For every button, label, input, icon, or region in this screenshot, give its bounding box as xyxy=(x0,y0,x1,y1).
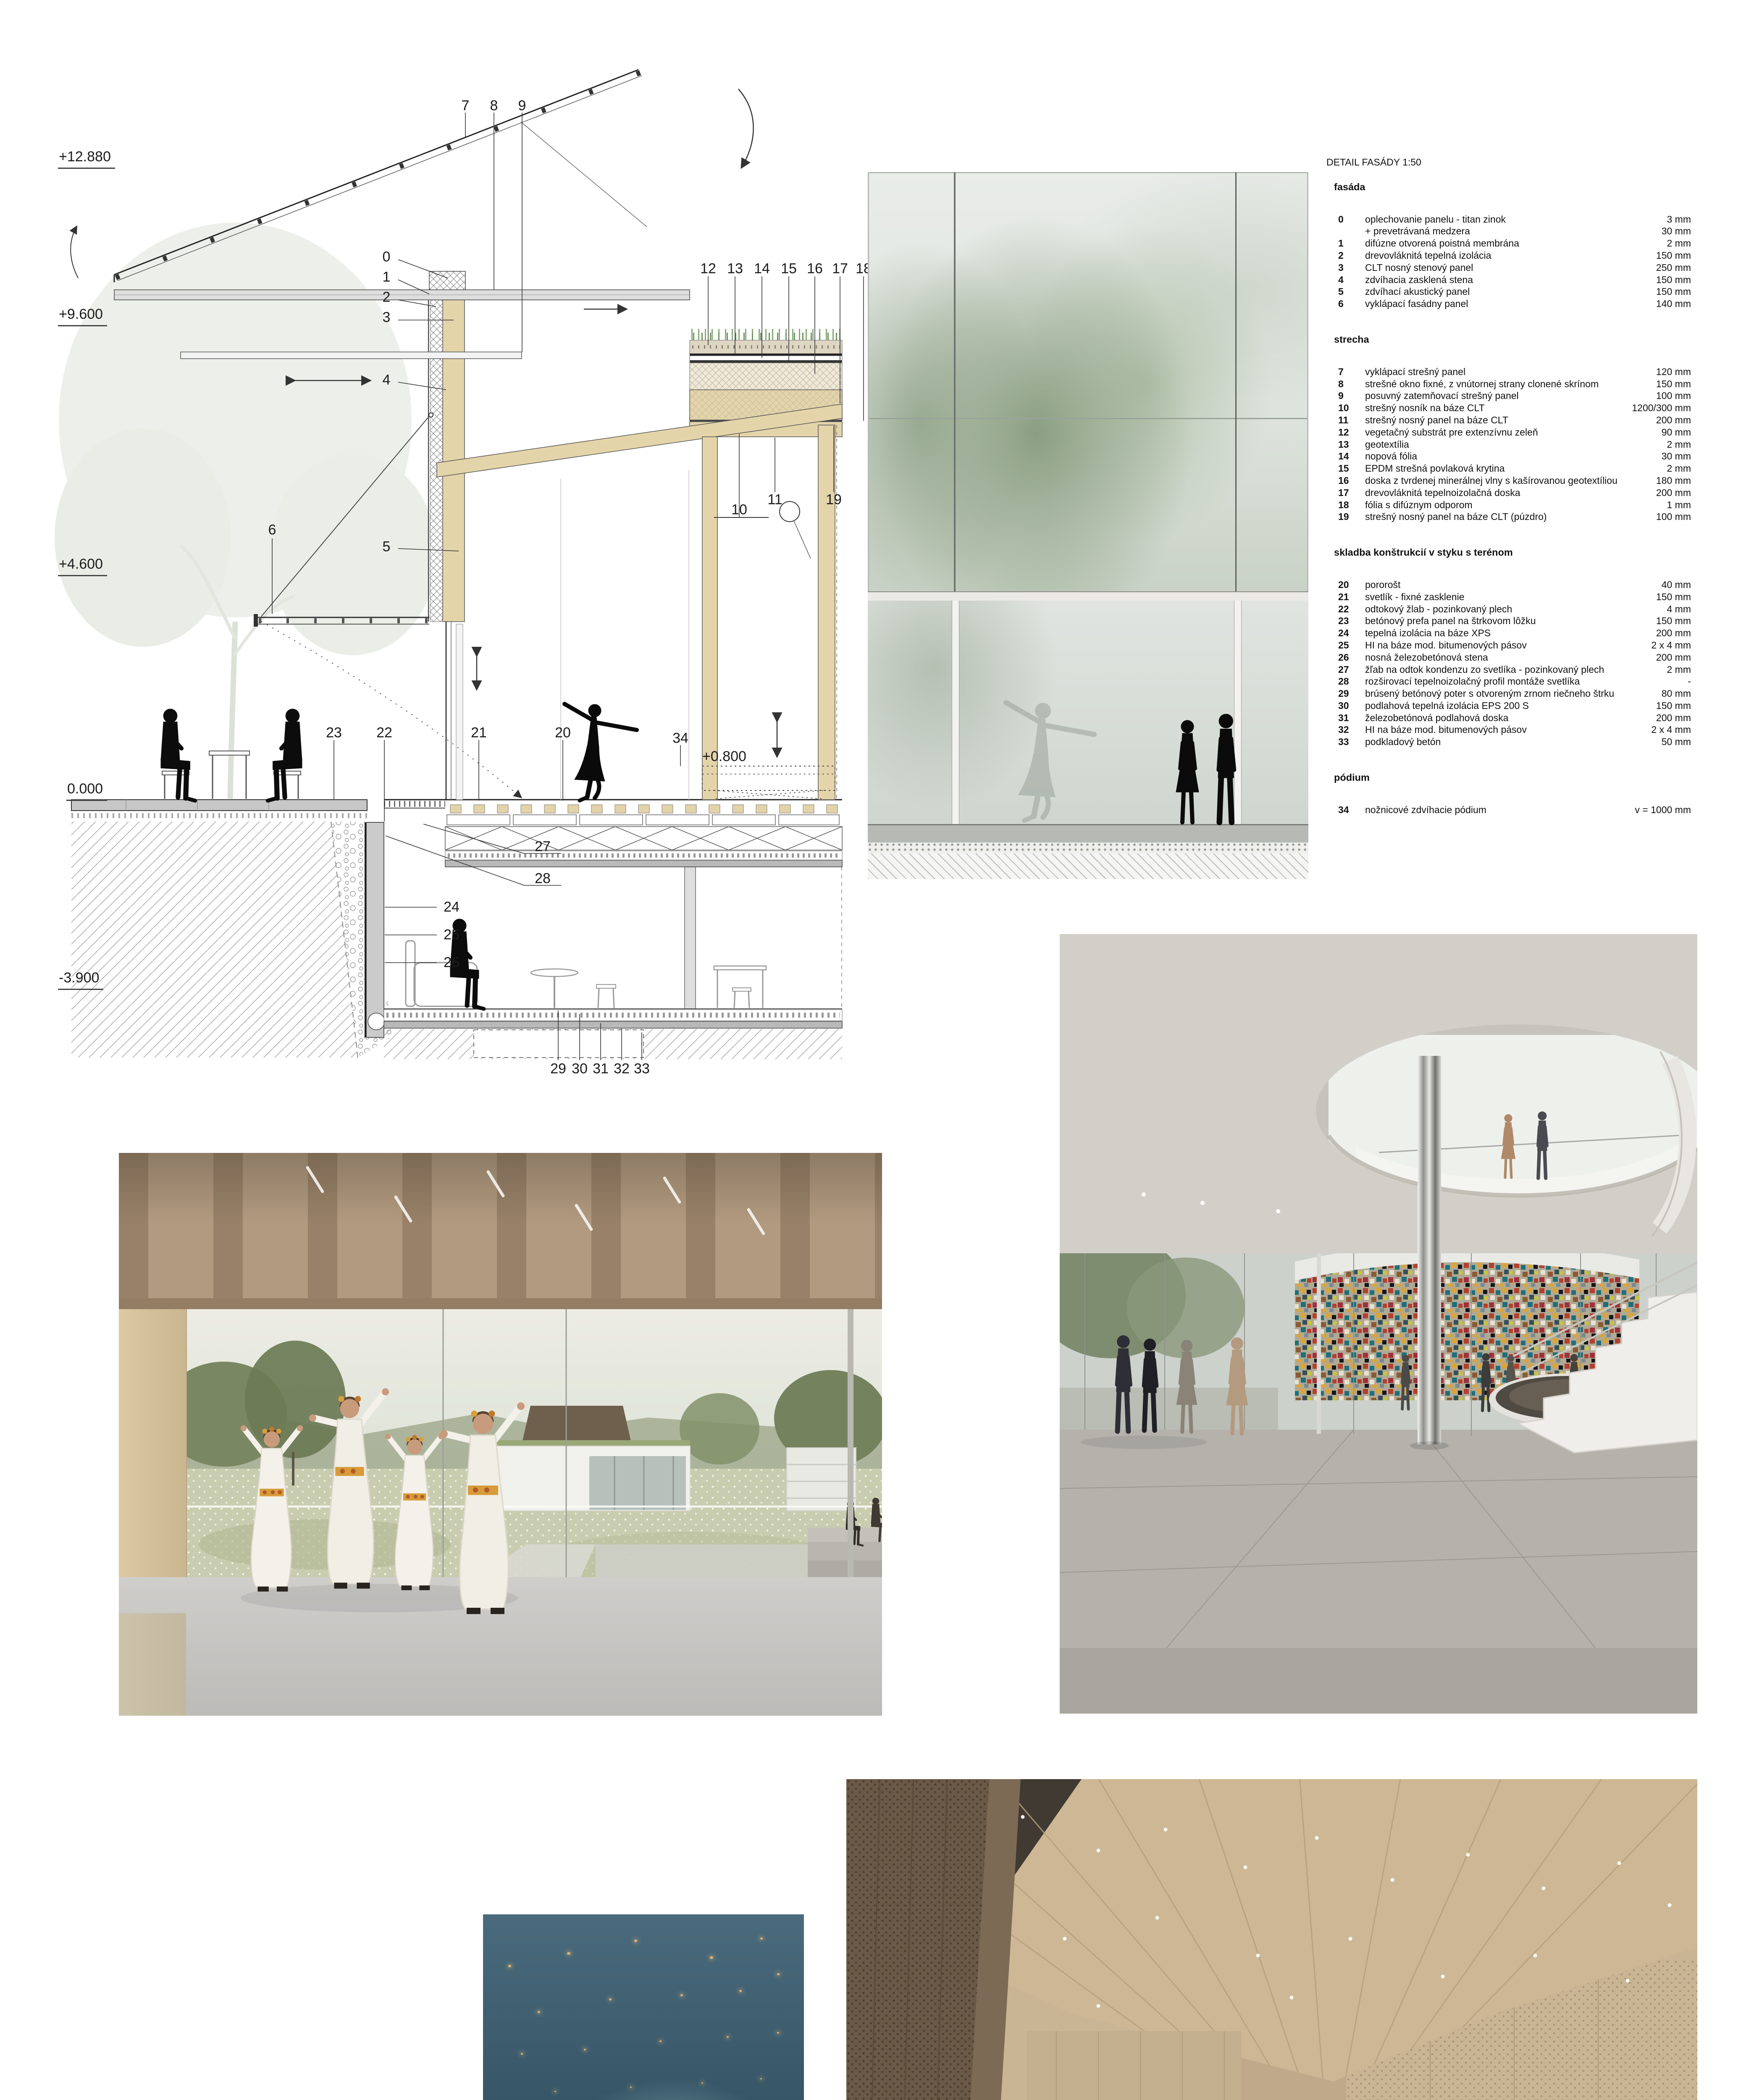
legend-item-label: tepelná izolácia na báze XPS xyxy=(1365,627,1656,639)
legend-item-label: doska z tvrdenej minerálnej vlny s kašír… xyxy=(1365,475,1656,487)
legend-item-label: nosná železobetónová stena xyxy=(1365,651,1656,664)
legend-item: 24tepelná izolácia na báze XPS200 mm xyxy=(1326,627,1691,639)
legend-item-label: drevovláknitá tepelná izolácia xyxy=(1365,249,1656,262)
legend-item-value: 30 mm xyxy=(1662,225,1691,237)
light-haze xyxy=(483,1914,804,2100)
legend-item-label: žľab na odtok kondenzu zo svetlíka - poz… xyxy=(1365,664,1667,676)
legend-item-number: 8 xyxy=(1338,378,1365,390)
ceiling-light-dot xyxy=(630,2087,632,2088)
legend-item: 15EPDM strešná povlaková krytina2 mm xyxy=(1326,462,1691,475)
legend-item-value: 200 mm xyxy=(1656,627,1691,639)
section-drawing-canvas xyxy=(42,42,867,1117)
folk-dancers xyxy=(119,1153,882,1716)
legend-item-number: 3 xyxy=(1338,262,1365,274)
legend-item-label: rozširovací tepelnoizolačný profil montá… xyxy=(1365,675,1688,688)
legend-item: 29brúsený betónový poter s otvoreným zrn… xyxy=(1326,688,1691,700)
legend-item: 20pororošt40 mm xyxy=(1326,579,1691,591)
legend-item: 11strešný nosný panel na báze CLT200 mm xyxy=(1326,414,1691,426)
legend-item: 14nopová fólia30 mm xyxy=(1326,450,1691,462)
legend-item-value: 150 mm xyxy=(1656,591,1691,603)
legend-item-label: strešné okno fixné, z vnútornej strany c… xyxy=(1365,378,1656,390)
ceiling-light-dot xyxy=(659,2040,662,2042)
legend-item-label: strešný nosný panel na báze CLT (púzdro) xyxy=(1365,511,1656,523)
legend-section-heading: pódium xyxy=(1334,772,1691,784)
ceiling-light-dot xyxy=(760,2078,762,2079)
legend-items: 0oplechovanie panelu - titan zinok3 mm+ … xyxy=(1326,213,1691,310)
legend-item-label: HI na báze mod. bitumenových pásov xyxy=(1365,639,1651,651)
legend-item-label: brúsený betónový poter s otvoreným zrnom… xyxy=(1365,688,1662,700)
legend-item-value: 3 mm xyxy=(1667,213,1691,226)
legend-item-value: v = 1000 mm xyxy=(1635,804,1691,816)
legend-item: 1difúzne otvorená poistná membrána2 mm xyxy=(1326,237,1691,249)
excavation-and-retaining-wall xyxy=(71,822,392,1058)
ceiling-light-dot xyxy=(680,1994,683,1996)
facade-detail-section-drawing: +12.880+9.600+4.6000.000-3.9007891213141… xyxy=(0,0,890,1142)
legend-section-heading: strecha xyxy=(1334,333,1691,346)
legend-item-number: 31 xyxy=(1338,712,1365,724)
legend-section-heading: skladba konštrukcií v styku s terénom xyxy=(1334,546,1691,559)
legend-item-number: 16 xyxy=(1338,475,1365,487)
legend-item-number: 20 xyxy=(1338,579,1365,591)
legend-item-value: 2 x 4 mm xyxy=(1651,639,1691,651)
legend-item-value: 4 mm xyxy=(1667,603,1691,615)
legend-item-value: 180 mm xyxy=(1656,475,1691,487)
legend-item: 3CLT nosný stenový panel250 mm xyxy=(1326,262,1691,274)
legend-item-label: nožnicové zdvíhacie pódium xyxy=(1365,804,1635,816)
legend-items: 7vyklápací strešný panel120 mm8strešné o… xyxy=(1326,366,1691,523)
legend-item-value: 200 mm xyxy=(1656,487,1691,499)
legend-item-value: 150 mm xyxy=(1656,378,1691,390)
legend-item: 13geotextília2 mm xyxy=(1326,438,1691,451)
legend-item-label: + prevetrávaná medzera xyxy=(1365,225,1662,237)
legend-item-value: 2 x 4 mm xyxy=(1651,724,1691,736)
legend-item: 17drevovláknitá tepelnoizolačná doska200… xyxy=(1326,487,1691,499)
legend-item-number: 12 xyxy=(1338,426,1365,438)
legend-item-number: 24 xyxy=(1338,627,1365,639)
legend-item-value: 2 mm xyxy=(1667,438,1691,451)
legend-item-value: 90 mm xyxy=(1662,426,1691,438)
ceiling-light-dot xyxy=(538,2011,540,2013)
legend-item-label: nopová fólia xyxy=(1365,450,1662,462)
legend-item-label: zdvíhacia zasklená stena xyxy=(1365,274,1656,286)
legend-item-number: 2 xyxy=(1338,249,1365,262)
legend-item-label: zdvíhací akustický panel xyxy=(1365,286,1656,298)
legend-item-value: 120 mm xyxy=(1656,366,1691,378)
legend-items: 34nožnicové zdvíhacie pódiumv = 1000 mm xyxy=(1326,804,1691,816)
legend-item-number: 1 xyxy=(1338,237,1365,249)
legend-item: + prevetrávaná medzera30 mm xyxy=(1326,225,1691,237)
legend-item: 5zdvíhací akustický panel150 mm xyxy=(1326,286,1691,298)
ceiling-light-dot xyxy=(567,1952,570,1955)
legend-item-label: železobetónová podlahová doska xyxy=(1365,712,1656,724)
legend-item-number: 26 xyxy=(1338,651,1365,664)
legend-item-value: 140 mm xyxy=(1656,298,1691,310)
concert-performance-render xyxy=(483,1914,804,2100)
legend-item-label: geotextília xyxy=(1365,438,1667,451)
scissor-lift-podium xyxy=(702,766,835,799)
legend-item-value: 2 mm xyxy=(1667,664,1691,676)
legend-item-label: vyklápací fasádny panel xyxy=(1365,298,1656,310)
interior-dance-hall-render xyxy=(119,1153,882,1716)
plaza-scene xyxy=(1060,934,1697,1714)
legend-item: 34nožnicové zdvíhacie pódiumv = 1000 mm xyxy=(1326,804,1691,816)
legend-item-label: fólia s difúznym odporom xyxy=(1365,499,1667,511)
ceiling-light-dot xyxy=(584,2049,586,2050)
legend-item-number: 7 xyxy=(1338,366,1365,378)
ceiling-light-dot xyxy=(508,1965,511,1967)
legend-item-label: HI na báze mod. bitumenových pásov xyxy=(1365,724,1651,736)
legend-item: 25HI na báze mod. bitumenových pásov2 x … xyxy=(1326,639,1691,651)
legend-item: 21svetlík - fixné zasklenie150 mm xyxy=(1326,591,1691,603)
legend-item: 4zdvíhacia zasklená stena150 mm xyxy=(1326,274,1691,286)
legend-item-label: pororošt xyxy=(1365,579,1662,591)
legend-item-number: 9 xyxy=(1338,390,1365,402)
facade-elevation-render xyxy=(868,172,1308,879)
legend-item: 0oplechovanie panelu - titan zinok3 mm xyxy=(1326,213,1691,226)
legend-item-value: 150 mm xyxy=(1656,286,1691,298)
legend-item-value: 150 mm xyxy=(1656,615,1691,627)
legend-item-number: 13 xyxy=(1338,438,1365,451)
legend-item-label: posuvný zatemňovací strešný panel xyxy=(1365,390,1656,402)
legend-item-value: 50 mm xyxy=(1662,736,1691,748)
legend-item-value: 200 mm xyxy=(1656,414,1691,426)
ceiling-light-dot xyxy=(739,1990,742,1992)
legend-item-value: 100 mm xyxy=(1656,511,1691,523)
legend-item-number: 28 xyxy=(1338,675,1365,688)
legend-item: 23betónový prefa panel na štrkovom lôžku… xyxy=(1326,615,1691,627)
legend-item-value: 1200/300 mm xyxy=(1632,402,1691,414)
ceiling-light-dot xyxy=(634,1940,637,1942)
legend-item-label: strešný nosný panel na báze CLT xyxy=(1365,414,1656,426)
legend-item-label: odtokový žlab - pozinkovaný plech xyxy=(1365,603,1667,615)
legend-item: 19strešný nosný panel na báze CLT (púzdr… xyxy=(1326,511,1691,523)
legend-item-value: 30 mm xyxy=(1662,450,1691,462)
legend-item-label: CLT nosný stenový panel xyxy=(1365,262,1656,274)
elevation-figures xyxy=(868,172,1308,879)
legend-item-number xyxy=(1338,225,1365,237)
legend-item: 10strešný nosník na báze CLT1200/300 mm xyxy=(1326,402,1691,414)
basement-interior xyxy=(384,867,842,1059)
facade-legend: DETAIL FASÁDY 1:50 fasáda0oplechovanie p… xyxy=(1326,156,1691,816)
legend-title: DETAIL FASÁDY 1:50 xyxy=(1326,156,1691,168)
legend-item-value: - xyxy=(1688,675,1691,688)
legend-item-number: 6 xyxy=(1338,298,1365,310)
ceiling-light-dot xyxy=(609,1998,612,2000)
ceiling-light-dot xyxy=(554,2091,556,2092)
legend-item-number: 17 xyxy=(1338,487,1365,499)
legend-item-label: drevovláknitá tepelnoizolačná doska xyxy=(1365,487,1656,499)
legend-item-number: 25 xyxy=(1338,639,1365,651)
legend-item: 22odtokový žlab - pozinkovaný plech4 mm xyxy=(1326,603,1691,615)
ceiling-light-dot xyxy=(760,1937,763,1940)
legend-items: 20pororošt40 mm21svetlík - fixné zasklen… xyxy=(1326,579,1691,748)
legend-item-number: 23 xyxy=(1338,615,1365,627)
legend-item: 12vegetačný substrát pre extenzívnu zele… xyxy=(1326,426,1691,438)
auditorium-scene xyxy=(846,1779,1697,2100)
legend-item-number: 27 xyxy=(1338,664,1365,676)
legend-item: 9posuvný zatemňovací strešný panel100 mm xyxy=(1326,390,1691,402)
legend-item-number: 33 xyxy=(1338,736,1365,748)
terrace xyxy=(71,709,367,816)
legend-item-label: EPDM strešná povlaková krytina xyxy=(1365,462,1667,475)
legend-item-number: 19 xyxy=(1338,511,1365,523)
legend-item: 8strešné okno fixné, z vnútornej strany … xyxy=(1326,378,1691,390)
legend-item-value: 200 mm xyxy=(1656,712,1691,724)
legend-item-value: 100 mm xyxy=(1656,390,1691,402)
legend-item: 18fólia s difúznym odporom1 mm xyxy=(1326,499,1691,511)
auditorium-render xyxy=(846,1779,1697,2100)
legend-item-value: 150 mm xyxy=(1656,700,1691,712)
legend-item-number: 34 xyxy=(1338,804,1365,816)
ceiling-light-dot xyxy=(777,2032,779,2034)
legend-item-label: difúzne otvorená poistná membrána xyxy=(1365,237,1667,249)
legend-item-label: strešný nosník na báze CLT xyxy=(1365,402,1632,414)
legend-item-label: svetlík - fixné zasklenie xyxy=(1365,591,1656,603)
legend-item-value: 80 mm xyxy=(1662,688,1691,700)
covered-plaza-render xyxy=(1060,934,1697,1714)
ceiling-light-dot xyxy=(727,2036,729,2038)
legend-item-number: 18 xyxy=(1338,499,1365,511)
legend-section-heading: fasáda xyxy=(1334,181,1691,193)
background-tree xyxy=(55,223,437,799)
legend-item-label: podkladový betón xyxy=(1365,736,1662,748)
legend-item-number: 15 xyxy=(1338,462,1365,475)
legend-item: 33podkladový betón50 mm xyxy=(1326,736,1691,748)
legend-item-number: 29 xyxy=(1338,688,1365,700)
legend-item-value: 250 mm xyxy=(1656,262,1691,274)
legend-item-number: 4 xyxy=(1338,274,1365,286)
legend-item: 16doska z tvrdenej minerálnej vlny s kaš… xyxy=(1326,475,1691,487)
legend-item: 7vyklápací strešný panel120 mm xyxy=(1326,366,1691,378)
legend-item: 6vyklápací fasádny panel140 mm xyxy=(1326,298,1691,310)
ceiling-light-dot xyxy=(777,1973,780,1975)
legend-item-value: 40 mm xyxy=(1662,579,1691,591)
legend-item-value: 2 mm xyxy=(1667,462,1691,475)
legend-item: 28rozširovací tepelnoizolačný profil mon… xyxy=(1326,675,1691,688)
legend-item-number: 14 xyxy=(1338,450,1365,462)
ceiling-light-dot xyxy=(710,1956,713,1959)
legend-item: 32HI na báze mod. bitumenových pásov2 x … xyxy=(1326,724,1691,736)
legend-item: 30podlahová tepelná izolácia EPS 200 S15… xyxy=(1326,700,1691,712)
legend-item: 26nosná železobetónová stena200 mm xyxy=(1326,651,1691,664)
ceiling-light-dot xyxy=(521,2053,523,2055)
legend-item-number: 0 xyxy=(1338,213,1365,226)
legend-item-label: betónový prefa panel na štrkovom lôžku xyxy=(1365,615,1656,627)
legend-item-number: 22 xyxy=(1338,603,1365,615)
legend-item-number: 21 xyxy=(1338,591,1365,603)
legend-item-number: 5 xyxy=(1338,286,1365,298)
legend-item-label: vyklápací strešný panel xyxy=(1365,366,1656,378)
legend-item-value: 150 mm xyxy=(1656,274,1691,286)
legend-item-number: 32 xyxy=(1338,724,1365,736)
legend-item-number: 11 xyxy=(1338,414,1365,426)
dancer-silhouette xyxy=(565,704,637,801)
legend-item: 31železobetónová podlahová doska200 mm xyxy=(1326,712,1691,724)
legend-item-value: 200 mm xyxy=(1656,651,1691,664)
legend-item: 27žľab na odtok kondenzu zo svetlíka - p… xyxy=(1326,664,1691,676)
ceiling-light-dot xyxy=(701,2082,703,2084)
legend-item-value: 1 mm xyxy=(1667,499,1691,511)
legend-item-label: oplechovanie panelu - titan zinok xyxy=(1365,213,1667,226)
presentation-sheet: +12.880+9.600+4.6000.000-3.9007891213141… xyxy=(0,0,1754,2100)
legend-item-label: podlahová tepelná izolácia EPS 200 S xyxy=(1365,700,1656,712)
legend-item-value: 2 mm xyxy=(1667,237,1691,249)
legend-item-label: vegetačný substrát pre extenzívnu zeleň xyxy=(1365,426,1662,438)
legend-item-value: 150 mm xyxy=(1656,249,1691,262)
legend-item-number: 10 xyxy=(1338,402,1365,414)
legend-item-number: 30 xyxy=(1338,700,1365,712)
legend-item: 2drevovláknitá tepelná izolácia150 mm xyxy=(1326,249,1691,262)
legend-body: fasáda0oplechovanie panelu - titan zinok… xyxy=(1326,181,1691,816)
